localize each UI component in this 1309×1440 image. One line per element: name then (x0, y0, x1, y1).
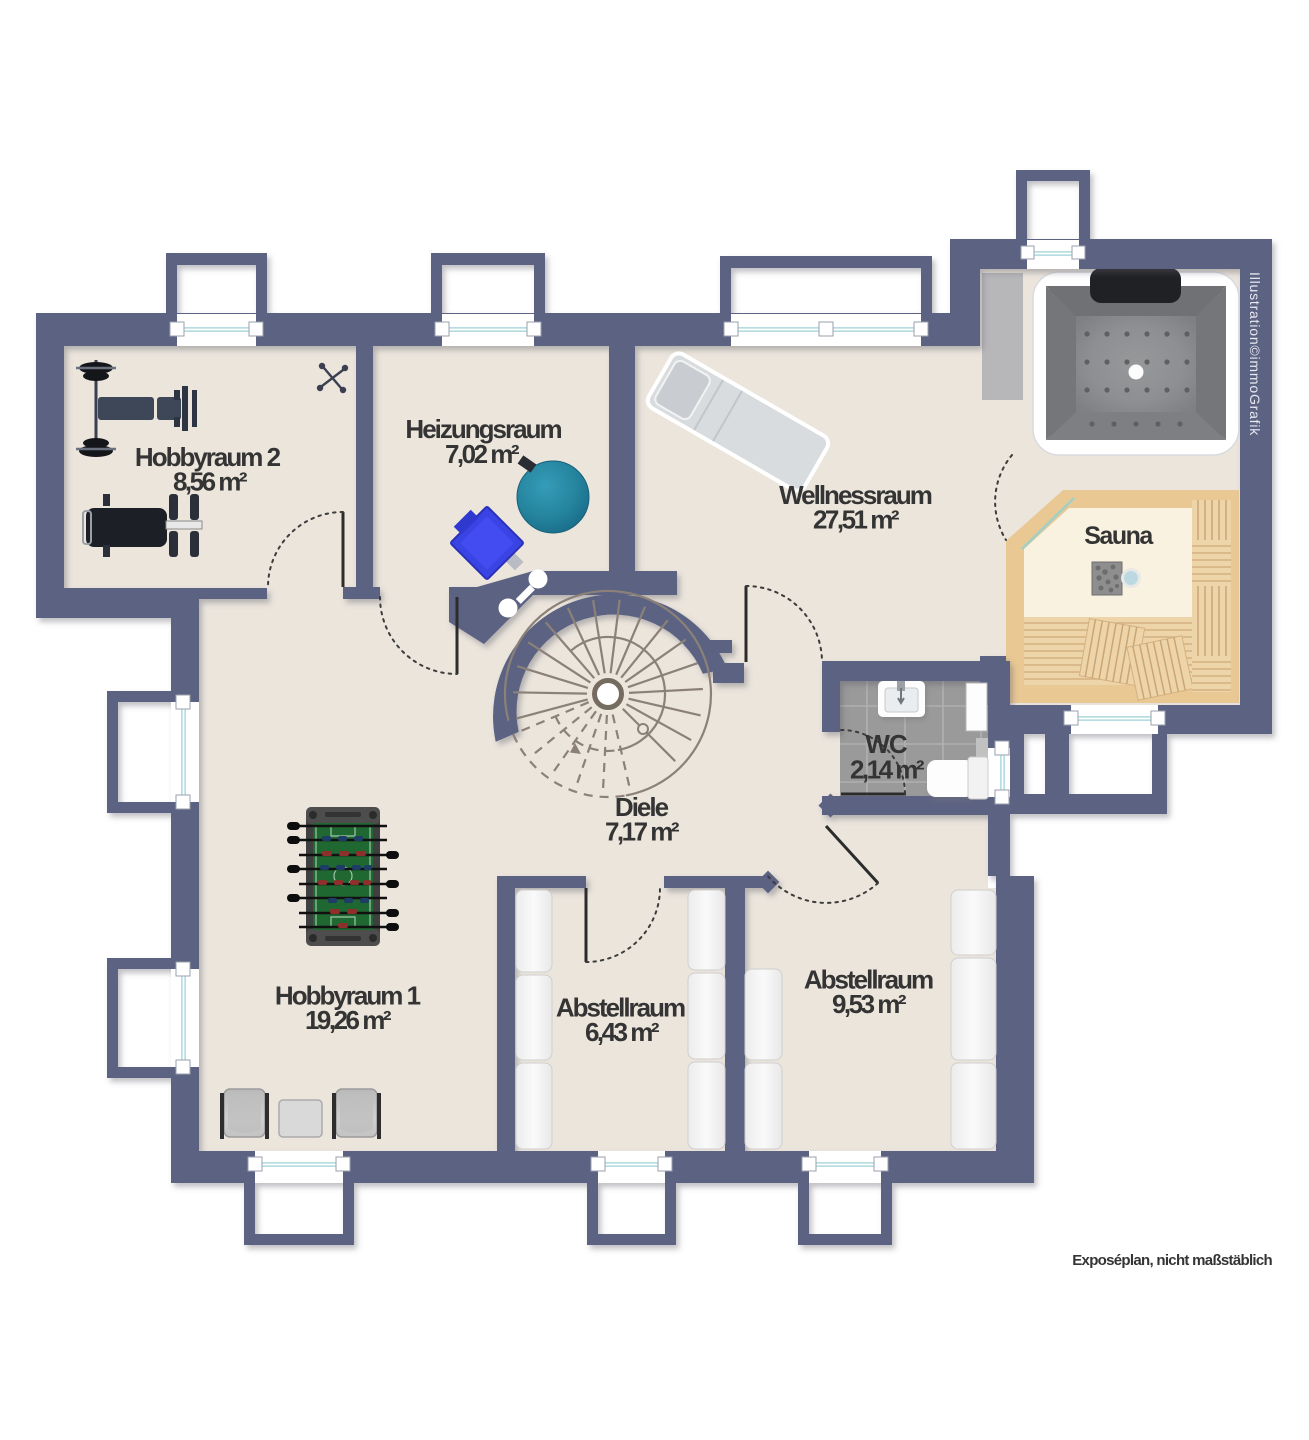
svg-text:8,56 m²: 8,56 m² (173, 467, 248, 497)
svg-text:7,17 m²: 7,17 m² (605, 817, 680, 847)
svg-text:19,26 m²: 19,26 m² (305, 1005, 392, 1035)
svg-text:27,51 m²: 27,51 m² (813, 505, 900, 535)
svg-text:Exposéplan, nicht maßstäblich: Exposéplan, nicht maßstäblich (1072, 1252, 1272, 1269)
svg-text:Sauna: Sauna (1084, 522, 1154, 550)
svg-text:6,43 m²: 6,43 m² (585, 1017, 660, 1047)
svg-text:7,02 m²: 7,02 m² (445, 439, 520, 469)
svg-text:9,53 m²: 9,53 m² (832, 989, 907, 1019)
svg-text:2,14 m²: 2,14 m² (850, 755, 925, 785)
svg-text:Illustration©immoGrafik: Illustration©immoGrafik (1247, 272, 1263, 436)
